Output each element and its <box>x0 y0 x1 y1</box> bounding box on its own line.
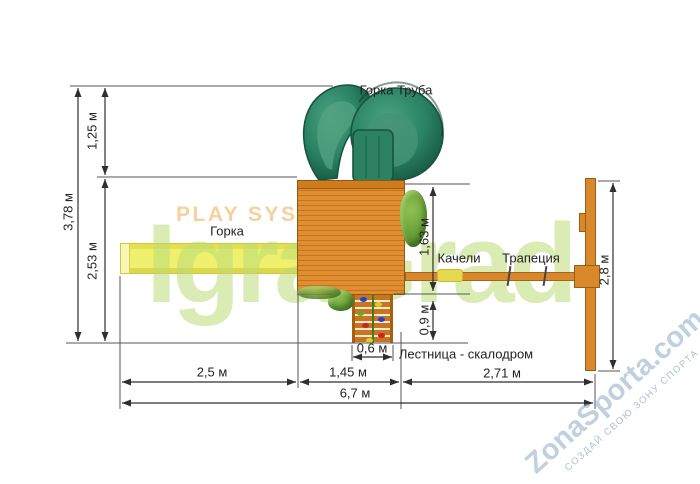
playground-plan-diagram: PLAY SYSTEM IgraGrad <box>0 0 700 484</box>
ladder-center-rail <box>372 295 374 343</box>
platform-top-view <box>297 180 405 295</box>
a-frame-brace <box>579 213 586 232</box>
dim-label-slide-length: 2,5 м <box>197 365 228 380</box>
climbing-hold <box>357 311 364 316</box>
swing-seat <box>437 269 463 282</box>
watermark-zonasporta-tagline: СОЗДАЙ СВОЮ ЗОНУ СПОРТА <box>543 330 700 484</box>
swings-label: Качели <box>438 251 481 266</box>
swing-beam <box>405 272 586 281</box>
dim-label-ladder-width: 0,6 м <box>357 341 388 356</box>
dim-label-swing-section: 2,71 м <box>483 366 521 381</box>
climbing-ladder-top-view <box>352 295 393 343</box>
dim-label-lower-section: 2,53 м <box>85 242 100 280</box>
dim-label-frame-width: 2,8 м <box>597 255 612 286</box>
platform-wall <box>298 181 404 189</box>
dim-label-platform-width: 1,45 м <box>329 365 367 380</box>
dim-label-total-height: 3,78 м <box>61 193 76 231</box>
bush <box>297 286 341 299</box>
dim-label-ladder-depth: 0,9 м <box>417 305 432 336</box>
dim-label-total-length: 6,7 м <box>340 386 371 401</box>
ladder-label: Лестница - скалодром <box>399 347 533 362</box>
climbing-hold <box>362 323 369 328</box>
climbing-hold <box>378 317 385 322</box>
dim-label-tube-section: 1,25 м <box>85 112 100 150</box>
climbing-hold <box>375 302 382 307</box>
trapeze-label: Трапеция <box>502 251 560 266</box>
climbing-hold <box>360 297 367 302</box>
tube-slide-label: Горка Труба <box>360 83 433 98</box>
slide-end-cap <box>121 244 130 273</box>
watermark-zonasporta-title: ZonaSporta.com <box>519 303 700 481</box>
watermark-zonasporta: ZonaSporta.com СОЗДАЙ СВОЮ ЗОНУ СПОРТА <box>519 303 700 484</box>
slide-label: Горка <box>210 224 244 239</box>
climbing-hold <box>378 333 385 338</box>
dim-label-platform-depth: 1,63 м <box>417 218 432 256</box>
